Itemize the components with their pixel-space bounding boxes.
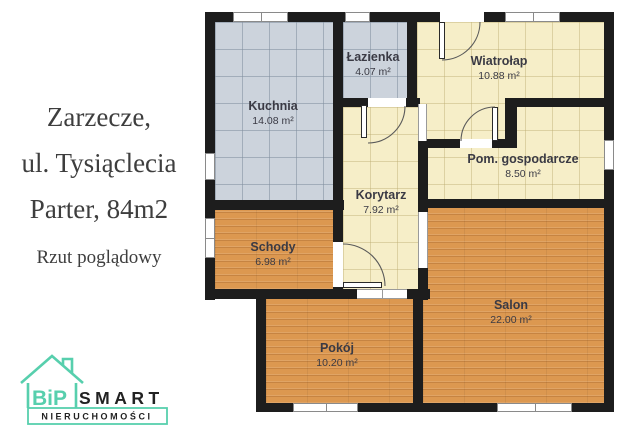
pomgosp-door-opening: [460, 139, 492, 148]
entrance-door-leaf: [439, 22, 445, 59]
window-pokoj-bottom: [293, 403, 358, 412]
logo-subtitle: NIERUCHOMOŚCI: [41, 411, 152, 422]
logo-prefix: BiP: [32, 387, 67, 410]
room-label-pokoj: Pokój 10.20 m²: [316, 341, 357, 370]
listing-floor-size: Parter, 84m2: [0, 186, 198, 232]
window-kuchnia-left: [205, 153, 215, 180]
logo-name: SMART: [79, 388, 164, 408]
window-lazienka-top: [345, 12, 370, 22]
listing-info-panel: Zarzecze, ul. Tysiąclecia Parter, 84m2 R…: [0, 94, 198, 278]
entrance-door-opening: [440, 12, 484, 22]
room-label-korytarz: Korytarz 7.92 m²: [356, 188, 407, 217]
wall-lazienka-right: [407, 22, 417, 107]
floor-plan-page: Zarzecze, ul. Tysiąclecia Parter, 84m2 R…: [0, 0, 620, 438]
wall-wiatrolap-bottom-right: [517, 98, 614, 107]
pokoj-passage-opening: [357, 289, 407, 299]
window-pomgosp-right: [604, 140, 614, 170]
room-label-salon: Salon 22.00 m²: [490, 298, 531, 327]
window-wiatrolap-top: [505, 12, 560, 22]
room-label-pom-gospodarcze: Pom. gospodarcze 8.50 m²: [467, 152, 578, 181]
wall-pokoj-left: [256, 293, 266, 412]
wall-pomgosp-step: [505, 98, 517, 148]
wall-pokoj-salon: [413, 293, 423, 412]
wall-outer-right: [604, 12, 614, 412]
lazienka-door-leaf: [361, 105, 367, 138]
pomgosp-door-leaf: [492, 107, 498, 141]
listing-location: Zarzecze,: [0, 94, 198, 140]
window-schody-left: [205, 218, 215, 258]
room-label-schody: Schody 6.98 m²: [250, 240, 295, 269]
schody-door-opening: [333, 242, 343, 287]
room-label-wiatrolap: Wiatrołap 10.88 m²: [471, 54, 528, 83]
plan-caption: Rzut poglądowy: [0, 238, 198, 278]
window-kuchnia-top: [233, 12, 288, 22]
listing-street: ul. Tysiąclecia: [0, 140, 198, 186]
room-label-lazienka: Łazienka 4.07 m²: [347, 50, 400, 79]
wall-salon-top: [418, 199, 614, 208]
schody-door-leaf: [343, 282, 382, 288]
window-salon-bottom: [497, 403, 572, 412]
agency-logo: BiP SMART NIERUCHOMOŚCI: [18, 350, 174, 432]
wall-schody-top: [205, 200, 344, 210]
lazienka-door-opening: [368, 98, 406, 107]
wiatrolap-threshold: [418, 104, 427, 141]
salon-passage-opening: [418, 212, 428, 268]
room-label-kuchnia: Kuchnia 14.08 m²: [248, 99, 297, 128]
